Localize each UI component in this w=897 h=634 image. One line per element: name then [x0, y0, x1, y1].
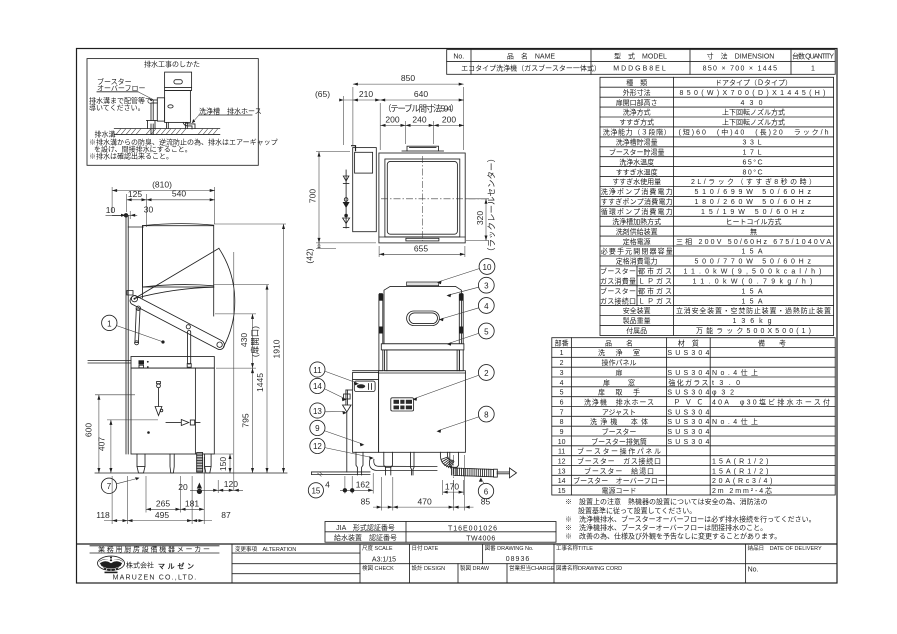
- svg-text:5: 5: [560, 390, 564, 397]
- svg-text:4: 4: [325, 480, 330, 490]
- svg-text:700: 700: [308, 189, 318, 203]
- svg-text:1910: 1910: [272, 339, 282, 358]
- svg-text:※排水は確認出来ること。: ※排水は確認出来ること。: [89, 152, 173, 161]
- svg-text:125: 125: [128, 189, 142, 199]
- svg-text:15A(R1/2): 15A(R1/2): [712, 459, 770, 466]
- svg-text:65°C: 65°C: [743, 158, 765, 166]
- svg-text:部番: 部番: [555, 338, 569, 347]
- svg-text:洗浄槽 排水ホース: 洗浄槽 排水ホース: [199, 107, 262, 116]
- svg-text:扉開口部高さ: 扉開口部高さ: [616, 98, 658, 107]
- svg-text:ブースター: ブースター: [600, 286, 636, 295]
- svg-text:上下回転ノズル方式: 上下回転ノズル方式: [722, 118, 785, 127]
- svg-text:200: 200: [442, 115, 456, 125]
- svg-text:MDDGB8EL: MDDGB8EL: [613, 66, 668, 73]
- svg-text:φ32: φ32: [712, 390, 736, 397]
- svg-text:8: 8: [484, 410, 489, 419]
- svg-text:ドアタイプ（Ｄタイプ）: ドアタイプ（Ｄタイプ）: [715, 78, 792, 87]
- svg-text:1: 1: [560, 350, 564, 357]
- svg-text:12: 12: [313, 442, 322, 451]
- svg-text:洗浄方式: 洗浄方式: [623, 108, 651, 117]
- svg-text:15: 15: [558, 488, 566, 495]
- svg-text:ブースター: ブースター: [602, 427, 637, 436]
- svg-text:洗浄槽加熱方式: 洗浄槽加熱方式: [612, 217, 661, 226]
- svg-text:470: 470: [418, 496, 432, 506]
- svg-text:尺度 SCALE: 尺度 SCALE: [362, 544, 393, 552]
- svg-text:日付 DATE: 日付 DATE: [412, 544, 439, 552]
- svg-text:850: 850: [401, 73, 415, 83]
- svg-text:電源コード: 電源コード: [602, 486, 637, 495]
- svg-text:15A: 15A: [742, 249, 766, 256]
- svg-text:上下回転ノズル方式: 上下回転ノズル方式: [722, 108, 785, 117]
- svg-text:4: 4: [560, 380, 564, 387]
- svg-text:洗浄能力（３段階）: 洗浄能力（３段階）: [603, 128, 671, 137]
- svg-text:定格電源: 定格電源: [623, 237, 651, 246]
- svg-text:導いてください。: 導いてください。: [89, 103, 145, 112]
- svg-text:14: 14: [313, 382, 322, 391]
- svg-text:三相 200V 50/60Hz 675/1040VA: 三相 200V 50/60Hz 675/1040VA: [676, 237, 831, 246]
- svg-text:1445: 1445: [255, 373, 265, 392]
- svg-text:850 × 700 × 1445: 850 × 700 × 1445: [703, 66, 779, 73]
- svg-text:11: 11: [313, 366, 322, 375]
- svg-text:立消安全装置・空焚防止装置・過熱防止装置: 立消安全装置・空焚防止装置・過熱防止装置: [676, 306, 831, 315]
- svg-text:540: 540: [172, 189, 186, 199]
- svg-text:ブースター: ブースター: [600, 267, 636, 276]
- svg-text:工事名称TITLE: 工事名称TITLE: [556, 544, 593, 552]
- svg-text:納品日 DATE OF DELIVERY: 納品日 DATE OF DELIVERY: [748, 544, 822, 552]
- svg-text:11: 11: [558, 449, 565, 456]
- svg-text:430: 430: [239, 333, 249, 347]
- svg-text:無: 無: [750, 227, 757, 236]
- svg-text:15A: 15A: [742, 288, 766, 295]
- svg-text:品 名: 品 名: [605, 338, 633, 347]
- svg-text:20A(Rc3/4): 20A(Rc3/4): [712, 478, 774, 485]
- svg-text:ブースター排気筒: ブースター排気筒: [591, 437, 647, 446]
- svg-text:500/770W 50/60Hz: 500/770W 50/60Hz: [695, 259, 813, 266]
- svg-text:※ 洗浄機排水、ブースターオーバーフローは間接排水のこと。: ※ 洗浄機排水、ブースターオーバーフローは間接排水のこと。: [565, 523, 767, 532]
- svg-text:6: 6: [484, 487, 489, 496]
- svg-text:3: 3: [484, 282, 489, 291]
- svg-text:(扉開口): (扉開口): [250, 326, 260, 357]
- svg-text:240: 240: [412, 115, 426, 125]
- svg-text:1: 1: [811, 66, 815, 73]
- svg-text:扉 窓: 扉 窓: [603, 378, 635, 387]
- svg-text:洗 浄 室: 洗 浄 室: [598, 348, 640, 357]
- svg-text:2m 2mm²-4芯: 2m 2mm²-4芯: [712, 486, 772, 495]
- svg-text:1: 1: [107, 319, 112, 328]
- svg-text:MARUZEN CO.,LTD.: MARUZEN CO.,LTD.: [113, 575, 198, 582]
- svg-text:品 名 NAME: 品 名 NAME: [507, 51, 556, 60]
- svg-text:操作パネル: 操作パネル: [602, 358, 637, 367]
- svg-text:15: 15: [311, 487, 320, 496]
- svg-text:営業担当CHARGE: 営業担当CHARGE: [509, 564, 555, 572]
- svg-text:※ 設置上の注意 熱機器の設置については安全の為、消防法の: ※ 設置上の注意 熱機器の設置については安全の為、消防法の: [565, 497, 768, 506]
- svg-text:118: 118: [96, 510, 110, 520]
- svg-text:795: 795: [241, 413, 251, 427]
- svg-text:495: 495: [155, 510, 169, 520]
- svg-text:No.: No.: [453, 53, 464, 60]
- svg-text:洗浄ポンプ消費電力: 洗浄ポンプ消費電力: [601, 187, 673, 196]
- svg-text:変更事項 ALTERATION: 変更事項 ALTERATION: [235, 545, 296, 553]
- svg-text:図番 DRAWING No.: 図番 DRAWING No.: [485, 545, 534, 552]
- svg-text:15A(R1/2): 15A(R1/2): [712, 468, 770, 475]
- svg-text:※ 洗浄機排水、ブースターオーバーフローは必ず排水接続を行っ: ※ 洗浄機排水、ブースターオーバーフローは必ず排水接続を行ってください。: [565, 515, 816, 524]
- svg-text:（テーブル間寸法594）: （テーブル間寸法594）: [383, 104, 459, 114]
- svg-text:定格消費電力: 定格消費電力: [616, 257, 658, 266]
- svg-text:型 式 MODEL: 型 式 MODEL: [614, 51, 667, 60]
- svg-text:6: 6: [560, 399, 564, 406]
- svg-text:すすぎ水使用量: すすぎ水使用量: [612, 177, 661, 186]
- svg-text:台数 QUANTITY: 台数 QUANTITY: [792, 51, 834, 60]
- svg-text:すすぎ方式: すすぎ方式: [619, 118, 654, 127]
- svg-text:すすぎ水温度: すすぎ水温度: [616, 167, 658, 176]
- svg-text:寸 法 DIMENSION: 寸 法 DIMENSION: [707, 51, 775, 60]
- svg-text:（ラックレールセンター）: （ラックレールセンター）: [487, 154, 497, 256]
- svg-text:80°C: 80°C: [743, 168, 765, 176]
- svg-text:オーバーフロー: オーバーフロー: [97, 85, 146, 93]
- svg-text:洗浄槽貯湯量: 洗浄槽貯湯量: [616, 138, 658, 147]
- svg-text:製図 DRAW: 製図 DRAW: [460, 564, 490, 572]
- svg-text:設計 DESIGN: 設計 DESIGN: [412, 564, 446, 572]
- svg-text:備 考: 備 考: [758, 338, 786, 347]
- svg-text:(810): (810): [152, 180, 172, 190]
- svg-text:T16E001026: T16E001026: [448, 525, 498, 532]
- svg-text:85: 85: [481, 497, 491, 507]
- svg-text:材 質: 材 質: [678, 338, 699, 347]
- svg-text:850(W)X700(D)X1445(H): 850(W)X700(D)X1445(H): [680, 90, 828, 97]
- svg-text:170: 170: [445, 482, 459, 492]
- svg-text:安全装置: 安全装置: [623, 306, 651, 315]
- svg-text:種 類: 種 類: [626, 78, 647, 87]
- svg-text:必要手元開閉器容量: 必要手元開閉器容量: [601, 247, 673, 256]
- svg-text:(65): (65): [315, 89, 330, 99]
- svg-text:13: 13: [558, 468, 566, 475]
- svg-text:162: 162: [356, 480, 370, 490]
- svg-text:給水装置 認証番号: 給水装置 認証番号: [334, 533, 397, 542]
- svg-text:8: 8: [560, 419, 564, 426]
- svg-text:(42): (42): [305, 248, 315, 263]
- svg-text:付属品: 付属品: [626, 326, 647, 335]
- svg-text:11.0kW(9,500kcal/h): 11.0kW(9,500kcal/h): [684, 269, 824, 276]
- svg-text:265: 265: [156, 499, 170, 509]
- svg-text:洗剤供給装置: 洗剤供給装置: [616, 227, 658, 236]
- svg-text:強化ガラス: 強化ガラス: [668, 378, 708, 387]
- svg-text:ブースター操作パネル: ブースター操作パネル: [577, 447, 661, 456]
- svg-text:ＰＶＣ: ＰＶＣ: [673, 398, 703, 406]
- svg-text:循環ポンプ消費電力: 循環ポンプ消費電力: [601, 207, 673, 216]
- svg-text:320: 320: [475, 211, 485, 225]
- svg-text:181: 181: [185, 499, 199, 509]
- svg-text:640: 640: [414, 89, 428, 99]
- svg-text:排水溝まで配管等で: 排水溝まで配管等で: [89, 96, 152, 105]
- svg-text:扉 取 手: 扉 取 手: [598, 388, 640, 397]
- svg-text:120: 120: [224, 479, 238, 489]
- svg-text:136kg: 136kg: [733, 318, 775, 325]
- svg-text:TW4006: TW4006: [466, 536, 495, 543]
- svg-text:を設け、間接排水にすること。: を設け、間接排水にすること。: [94, 145, 192, 154]
- svg-text:210: 210: [359, 89, 373, 99]
- svg-text:ガス接続口: ガス接続口: [600, 296, 636, 305]
- svg-text:A3:1/15: A3:1/15: [372, 557, 396, 564]
- svg-text:407: 407: [97, 437, 107, 451]
- svg-text:430: 430: [741, 100, 767, 107]
- svg-text:No.: No.: [748, 567, 759, 574]
- svg-text:ブースター 給湯口: ブースター 給湯口: [584, 466, 654, 475]
- svg-text:扉: 扉: [616, 368, 623, 377]
- svg-text:14: 14: [558, 478, 566, 485]
- svg-text:検図 CHECK: 検図 CHECK: [362, 564, 394, 572]
- svg-text:ブースター オーバーフロー: ブースター オーバーフロー: [573, 476, 665, 485]
- svg-text:設置基準に従って設置してください。: 設置基準に従って設置してください。: [578, 506, 696, 515]
- svg-text:ガス消費量: ガス消費量: [600, 277, 636, 286]
- svg-text:15A: 15A: [742, 298, 766, 305]
- svg-text:30: 30: [144, 205, 154, 215]
- svg-text:655: 655: [414, 244, 428, 254]
- svg-text:10: 10: [558, 439, 566, 446]
- svg-text:12: 12: [558, 459, 566, 466]
- svg-text:87: 87: [221, 510, 231, 520]
- svg-text:5: 5: [484, 327, 489, 336]
- svg-text:ブースター貯湯量: ブースター貯湯量: [609, 147, 665, 156]
- svg-text:7: 7: [560, 409, 564, 416]
- svg-text:10: 10: [483, 263, 492, 272]
- svg-text:※排水溝からの防臭、逆流防止の為、排水はエアーギャップ: ※排水溝からの防臭、逆流防止の為、排水はエアーギャップ: [89, 138, 278, 147]
- svg-text:85: 85: [361, 497, 371, 507]
- svg-text:13: 13: [313, 407, 322, 416]
- svg-text:アジャスト: アジャスト: [602, 408, 636, 416]
- svg-text:排水工事のしかた: 排水工事のしかた: [144, 60, 200, 69]
- svg-text:図書名称DRAWING CORD: 図書名称DRAWING CORD: [556, 564, 622, 572]
- svg-text:33L: 33L: [743, 140, 765, 147]
- svg-text:洗浄水温度: 洗浄水温度: [619, 157, 654, 166]
- svg-text:JIA 形式認証番号: JIA 形式認証番号: [336, 523, 395, 532]
- svg-text:08936: 08936: [506, 556, 530, 563]
- svg-text:17L: 17L: [743, 149, 765, 156]
- svg-text:150: 150: [218, 457, 228, 471]
- svg-text:10: 10: [106, 205, 116, 215]
- svg-text:ブースター ガス接続口: ブースター ガス接続口: [577, 457, 661, 466]
- svg-text:9: 9: [560, 429, 564, 436]
- svg-text:3: 3: [560, 370, 564, 377]
- svg-text:20: 20: [178, 482, 188, 492]
- svg-text:製品重量: 製品重量: [623, 316, 651, 325]
- svg-text:7: 7: [107, 482, 112, 491]
- svg-text:エコタイプ洗浄機（ガスブースター一体式）: エコタイプ洗浄機（ガスブースター一体式）: [461, 64, 601, 73]
- svg-text:510/699W 50/60Hz: 510/699W 50/60Hz: [695, 189, 813, 196]
- svg-text:11.0kW(0.79kg/h): 11.0kW(0.79kg/h): [693, 279, 815, 286]
- svg-text:外形寸法: 外形寸法: [623, 88, 651, 97]
- svg-text:600: 600: [84, 423, 94, 437]
- svg-text:※ 改善の為、仕様及び外観を予告なしに変更することがあります: ※ 改善の為、仕様及び外観を予告なしに変更することがあります。: [565, 532, 781, 541]
- svg-text:洗浄機 排水ホース: 洗浄機 排水ホース: [584, 397, 654, 406]
- svg-text:ヒートコイル方式: ヒートコイル方式: [726, 217, 782, 226]
- svg-text:4: 4: [484, 302, 489, 311]
- svg-text:9: 9: [315, 424, 320, 433]
- svg-text:すすぎポンプ消費電力: すすぎポンプ消費電力: [601, 197, 673, 206]
- svg-text:株式会社: 株式会社: [126, 561, 154, 570]
- svg-text:2: 2: [560, 360, 564, 367]
- svg-text:200: 200: [385, 115, 399, 125]
- svg-text:180/260W 50/60Hz: 180/260W 50/60Hz: [695, 199, 813, 206]
- svg-text:排水溝: 排水溝: [95, 130, 116, 139]
- svg-text:2: 2: [484, 369, 489, 378]
